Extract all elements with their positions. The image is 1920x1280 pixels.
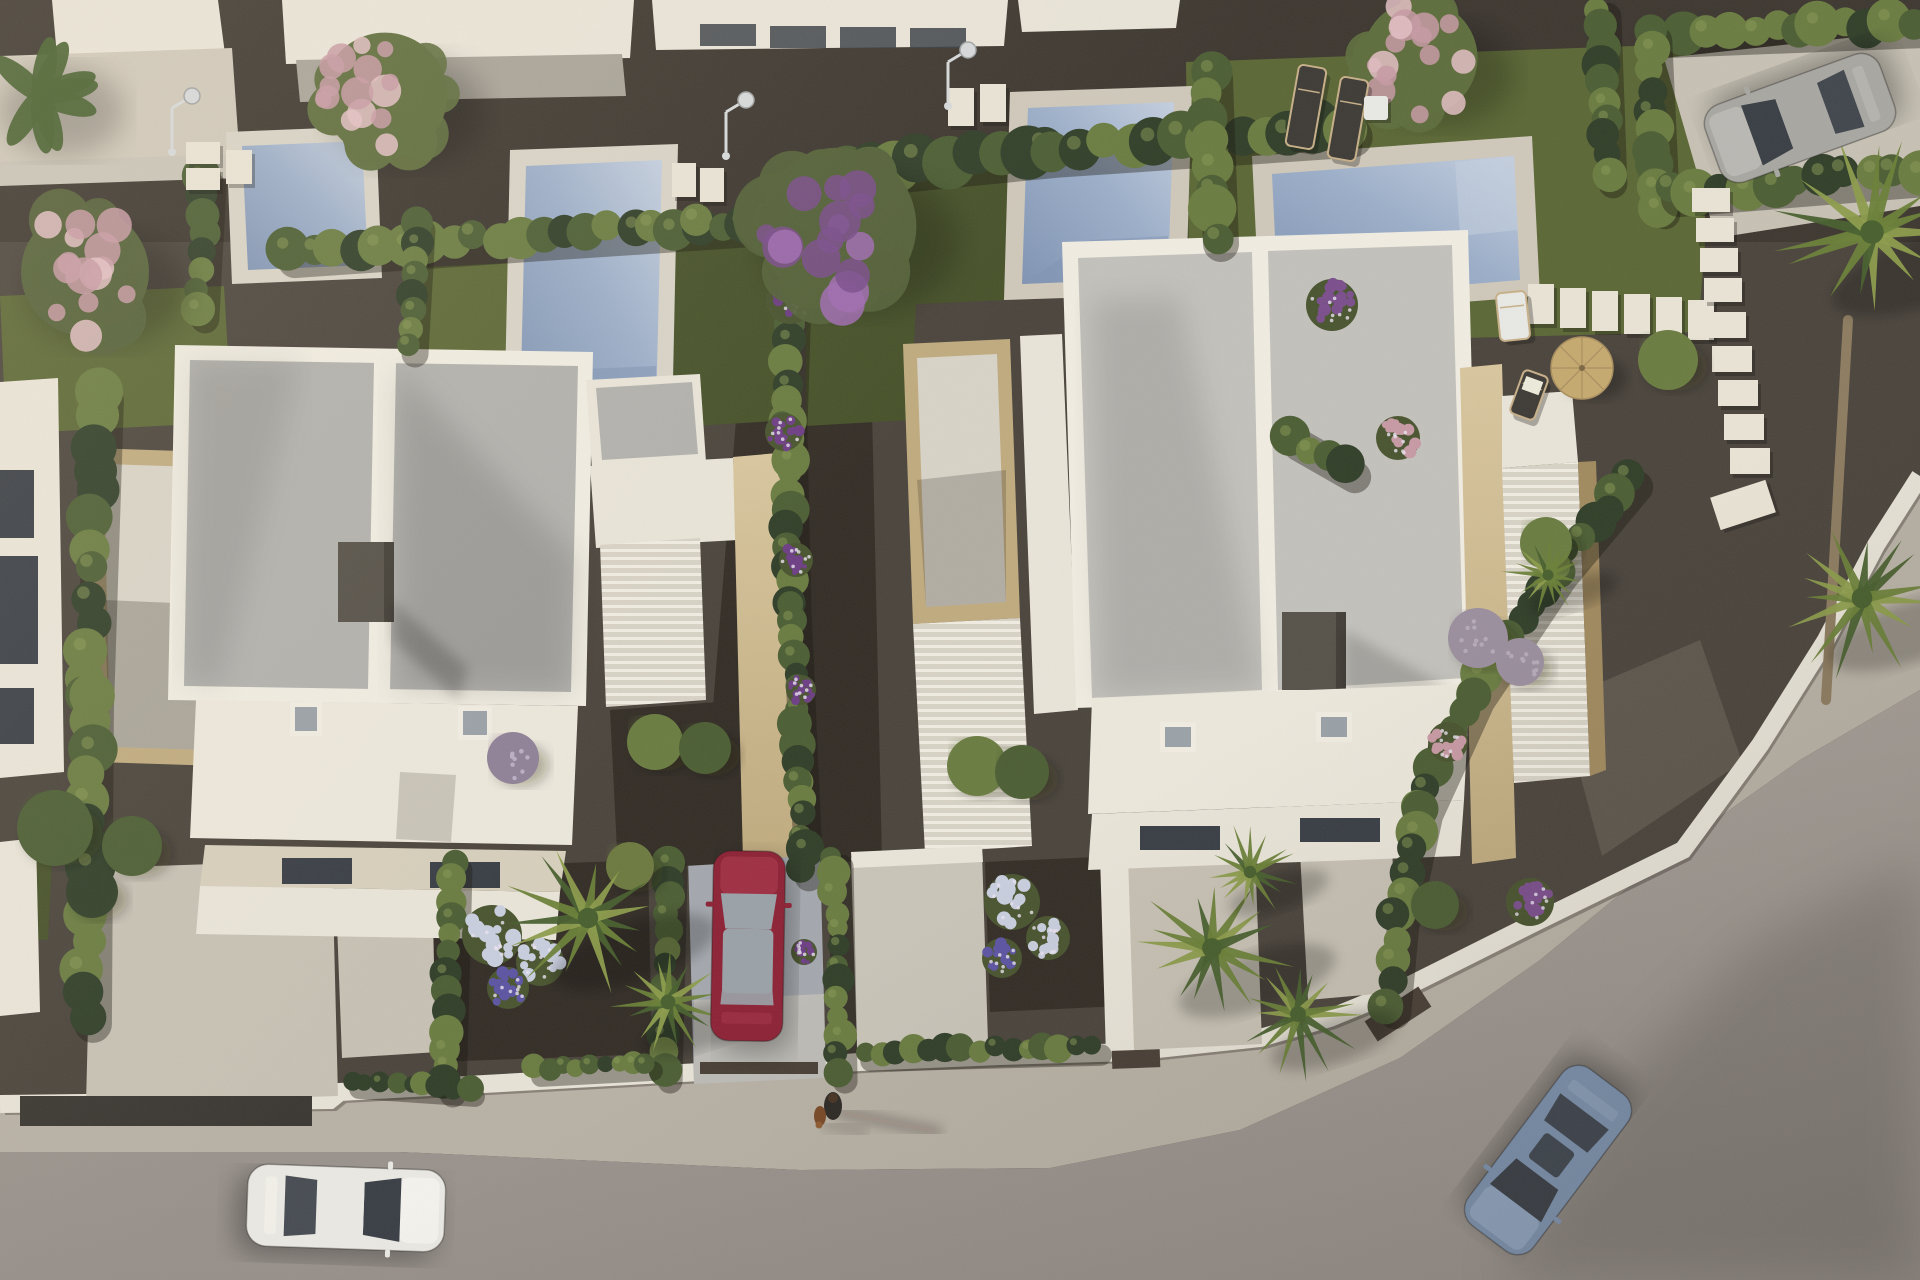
film-grain — [0, 0, 1920, 1280]
light-overlays — [0, 0, 1920, 1280]
aerial-render — [0, 0, 1920, 1280]
render-stage: Aerial 3D render of a modern villa devel… — [0, 0, 1920, 1280]
